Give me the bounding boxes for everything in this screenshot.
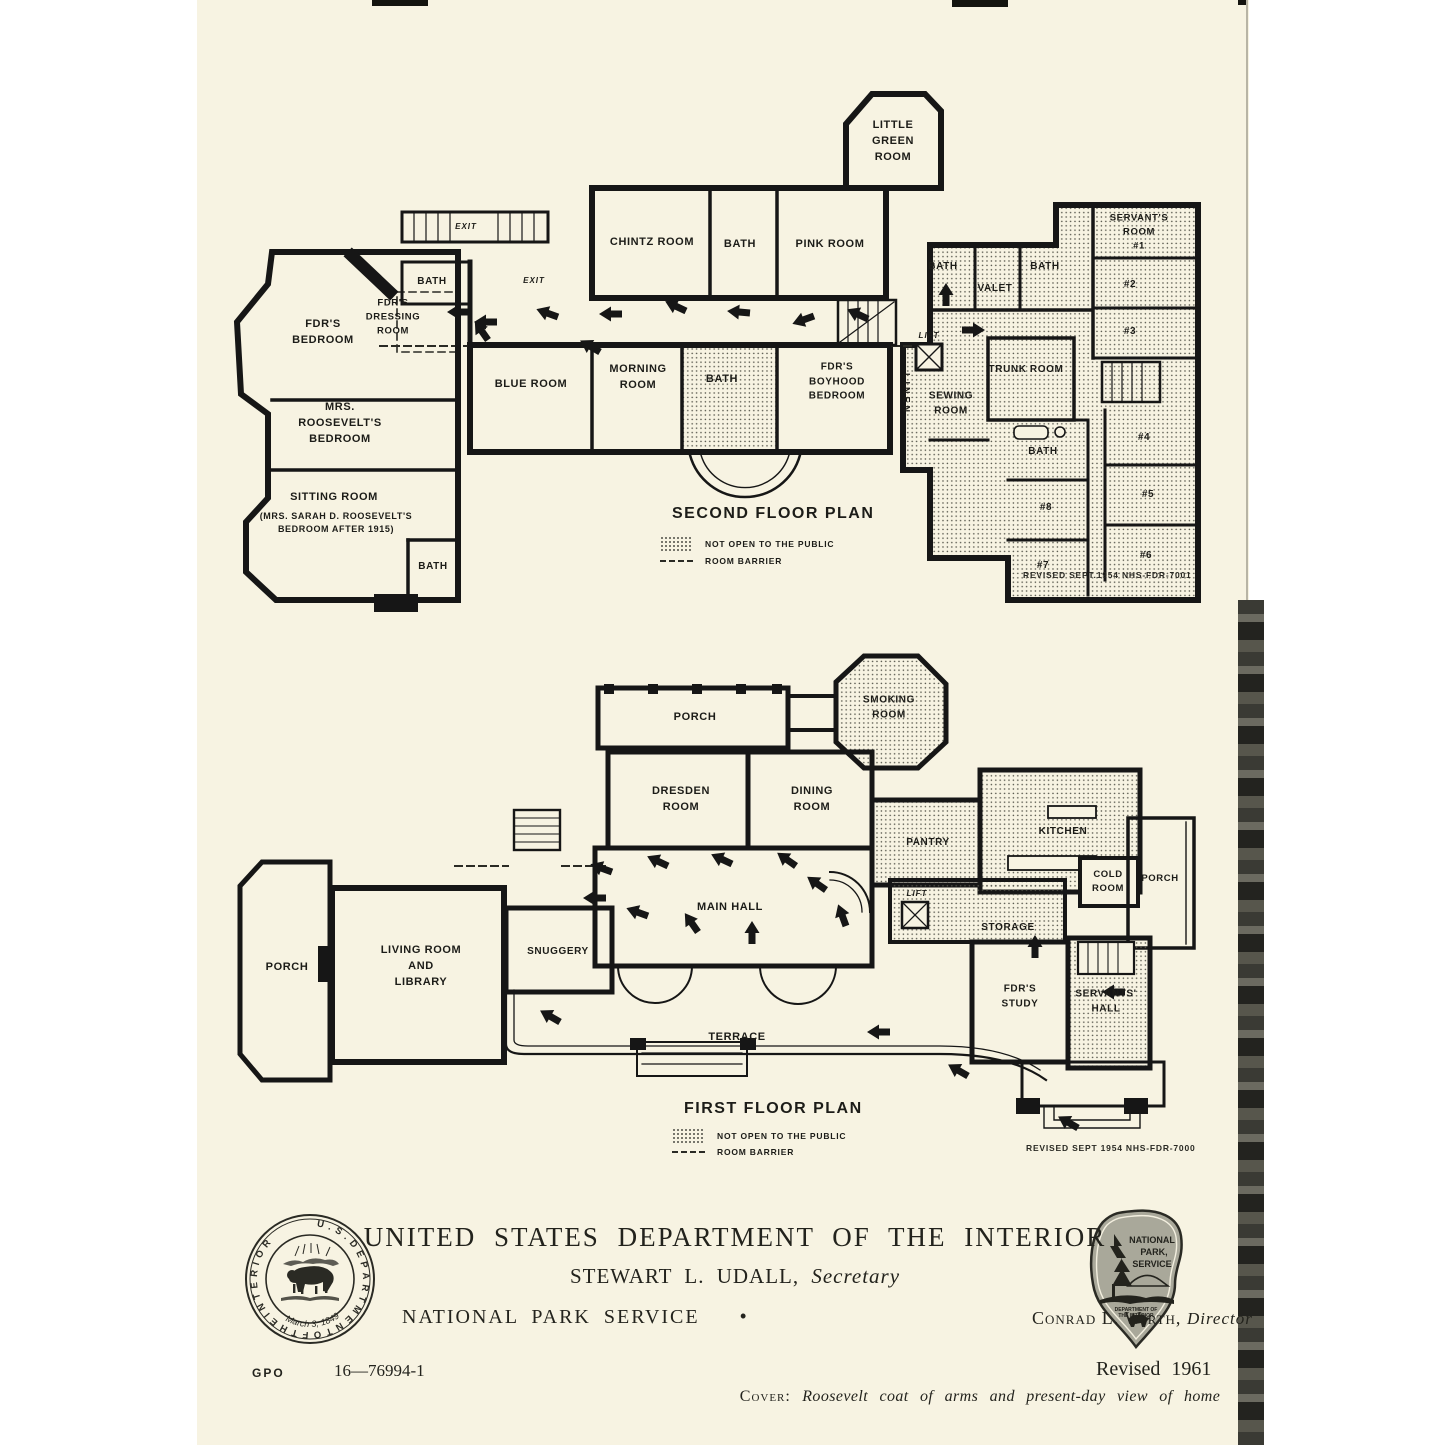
footer-director-line: Conrad L. Wirth, Director xyxy=(1032,1308,1253,1329)
footer-secretary-line: STEWART L. UDALL, Secretary xyxy=(330,1264,1140,1289)
first-floor-plan-title: FIRST FLOOR PLAN xyxy=(684,1100,863,1118)
room-barrier-swatch-icon xyxy=(660,560,693,562)
secretary-name: STEWART L. UDALL, xyxy=(570,1264,799,1288)
revised-date: Revised 1961 xyxy=(1096,1358,1211,1381)
second-floor-plan xyxy=(237,94,1198,612)
legend-room-barrier: ROOM BARRIER xyxy=(660,556,782,566)
footer-bullet: • xyxy=(740,1306,746,1327)
second-floor-revision: REVISED SEPT.1954 NHS-FDR-7001 xyxy=(1023,570,1192,580)
legend-room-barrier: ROOM BARRIER xyxy=(672,1147,794,1157)
gpo-label: GPO xyxy=(252,1366,285,1380)
director-title: Director xyxy=(1187,1309,1253,1328)
svg-text:PARK,: PARK, xyxy=(1140,1247,1167,1257)
cover-text: Roosevelt coat of arms and present-day v… xyxy=(802,1388,1220,1405)
cover-label: Cover: xyxy=(740,1388,791,1405)
not-open-swatch-icon xyxy=(660,536,693,551)
not-open-swatch-icon xyxy=(672,1128,705,1143)
first-floor-plan xyxy=(240,656,1194,1134)
gpo-number: 16—76994-1 xyxy=(334,1361,425,1381)
first-floor-revision: REVISED SEPT 1954 NHS-FDR-7000 xyxy=(1026,1143,1196,1153)
footer-title: UNITED STATES DEPARTMENT OF THE INTERIOR xyxy=(330,1222,1140,1253)
director-name: Conrad L. Wirth, xyxy=(1032,1308,1181,1328)
cover-caption: Cover: Roosevelt coat of arms and presen… xyxy=(700,1388,1260,1406)
legend-not-open: NOT OPEN TO THE PUBLIC xyxy=(672,1128,846,1143)
legend-not-open: NOT OPEN TO THE PUBLIC xyxy=(660,536,834,551)
footer-agency: NATIONAL PARK SERVICE xyxy=(402,1306,700,1329)
second-floor-plan-title: SECOND FLOOR PLAN xyxy=(672,505,874,523)
room-barrier-swatch-icon xyxy=(672,1151,705,1153)
scanned-document-page: { "document": { "colors": { "paper": "#f… xyxy=(0,0,1445,1445)
secretary-title: Secretary xyxy=(811,1264,900,1288)
